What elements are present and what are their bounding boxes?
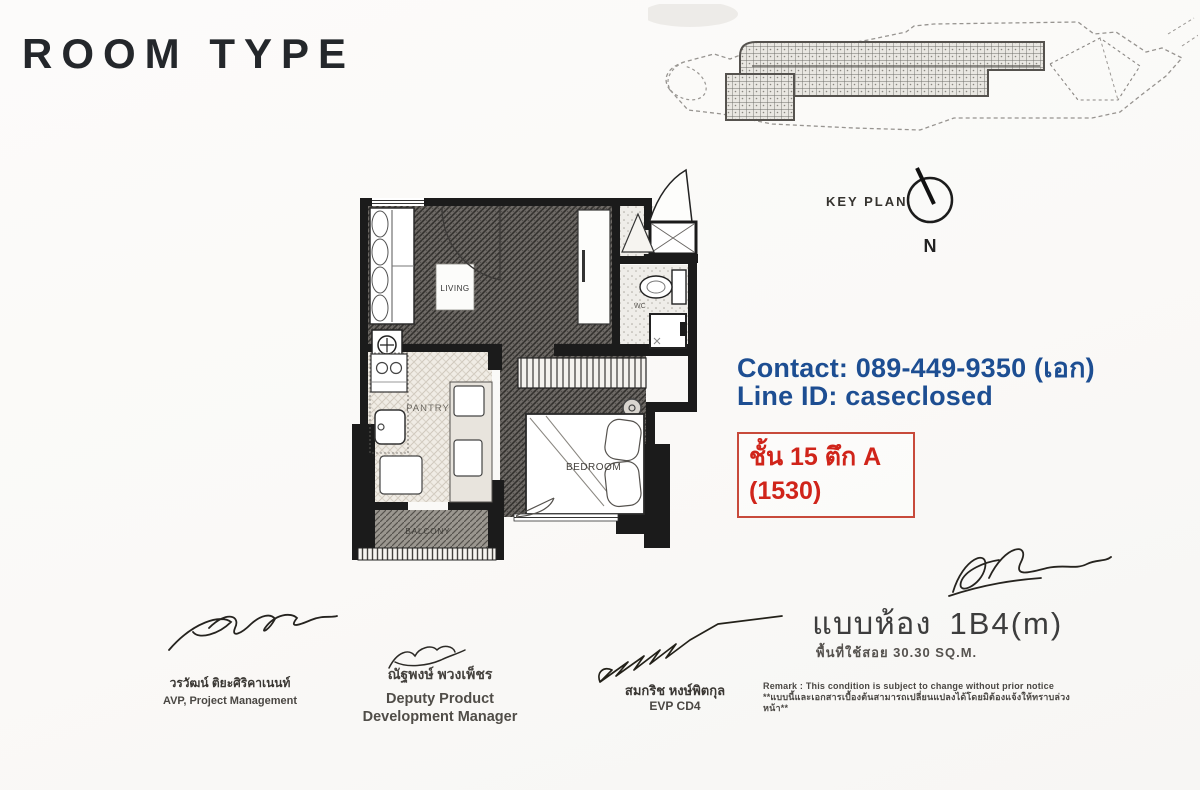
compass-needle <box>917 168 934 204</box>
signatory-2-name: ณัฐพงษ์ พวงเพ็ชร <box>350 664 530 686</box>
hall-wardrobe <box>578 210 610 324</box>
key-plan-site-drawing <box>648 4 1198 164</box>
unit-type-label: แบบห้อง <box>812 606 932 641</box>
room-type-brochure-page: { "page": { "title": "ROOM TYPE" }, "key… <box>0 0 1200 790</box>
signatory-1-title: AVP, Project Management <box>150 694 310 709</box>
building-annex <box>726 74 794 120</box>
shower <box>650 314 687 348</box>
wc-label: WC <box>634 303 646 310</box>
scan-smudge <box>648 4 738 27</box>
unit-floor-building: ชั้น 15 ตึก A <box>749 440 905 474</box>
pantry-chair <box>380 456 422 494</box>
site-parcel-right <box>1050 38 1140 100</box>
unit-type-code: 1B4(m) <box>950 606 1064 641</box>
signatory-3-title: EVP CD4 <box>595 699 755 714</box>
dining-counter <box>450 382 492 502</box>
bedroom-label: BEDROOM <box>566 462 621 473</box>
contact-line-id: Line ID: caseclosed <box>737 381 993 412</box>
remark-line-th: **แบบนี้และเอกสารเบื้องต้นสามารถเปลี่ยนแ… <box>763 692 1093 714</box>
living-window <box>372 198 424 206</box>
floor-plan-drawing: WC LIVING PANTRY <box>350 162 700 572</box>
ac-ledge <box>650 222 696 254</box>
signature-3 <box>596 612 786 690</box>
signatory-2-title-line1: Deputy Product <box>350 690 530 708</box>
balcony-railing <box>358 548 496 560</box>
bedroom-wardrobe <box>518 358 646 388</box>
balcony-label: BALCONY <box>405 527 450 536</box>
entry-door-swing <box>650 170 692 222</box>
compass-north-label: N <box>924 236 937 256</box>
signatory-3-name: สมกริช หงษ์พิตกุล <box>595 680 755 701</box>
site-survey-lines <box>1100 18 1198 100</box>
pantry-sink <box>375 410 405 444</box>
sofa <box>370 208 414 324</box>
signatory-2-title-line2: Development Manager <box>340 708 540 726</box>
unit-highlight-box: ชั้น 15 ตึก A (1530) <box>737 432 915 518</box>
signature-4 <box>945 540 1115 606</box>
north-compass: N <box>896 164 966 259</box>
remark-line-en: Remark : This condition is subject to ch… <box>763 681 1093 692</box>
unit-number: (1530) <box>749 474 905 508</box>
signatory-1-name: วรวัฒน์ ติยะศิริคาเนนท์ <box>160 674 300 693</box>
unit-area-line: พื้นที่ใช้สอย 30.30 SQ.M. <box>816 642 977 663</box>
pantry-label: PANTRY <box>406 403 450 414</box>
living-label: LIVING <box>440 284 469 293</box>
remark-block: Remark : This condition is subject to ch… <box>763 681 1093 714</box>
page-title: ROOM TYPE <box>22 30 355 78</box>
signature-1 <box>165 606 340 664</box>
site-driveway-loop <box>668 62 706 100</box>
